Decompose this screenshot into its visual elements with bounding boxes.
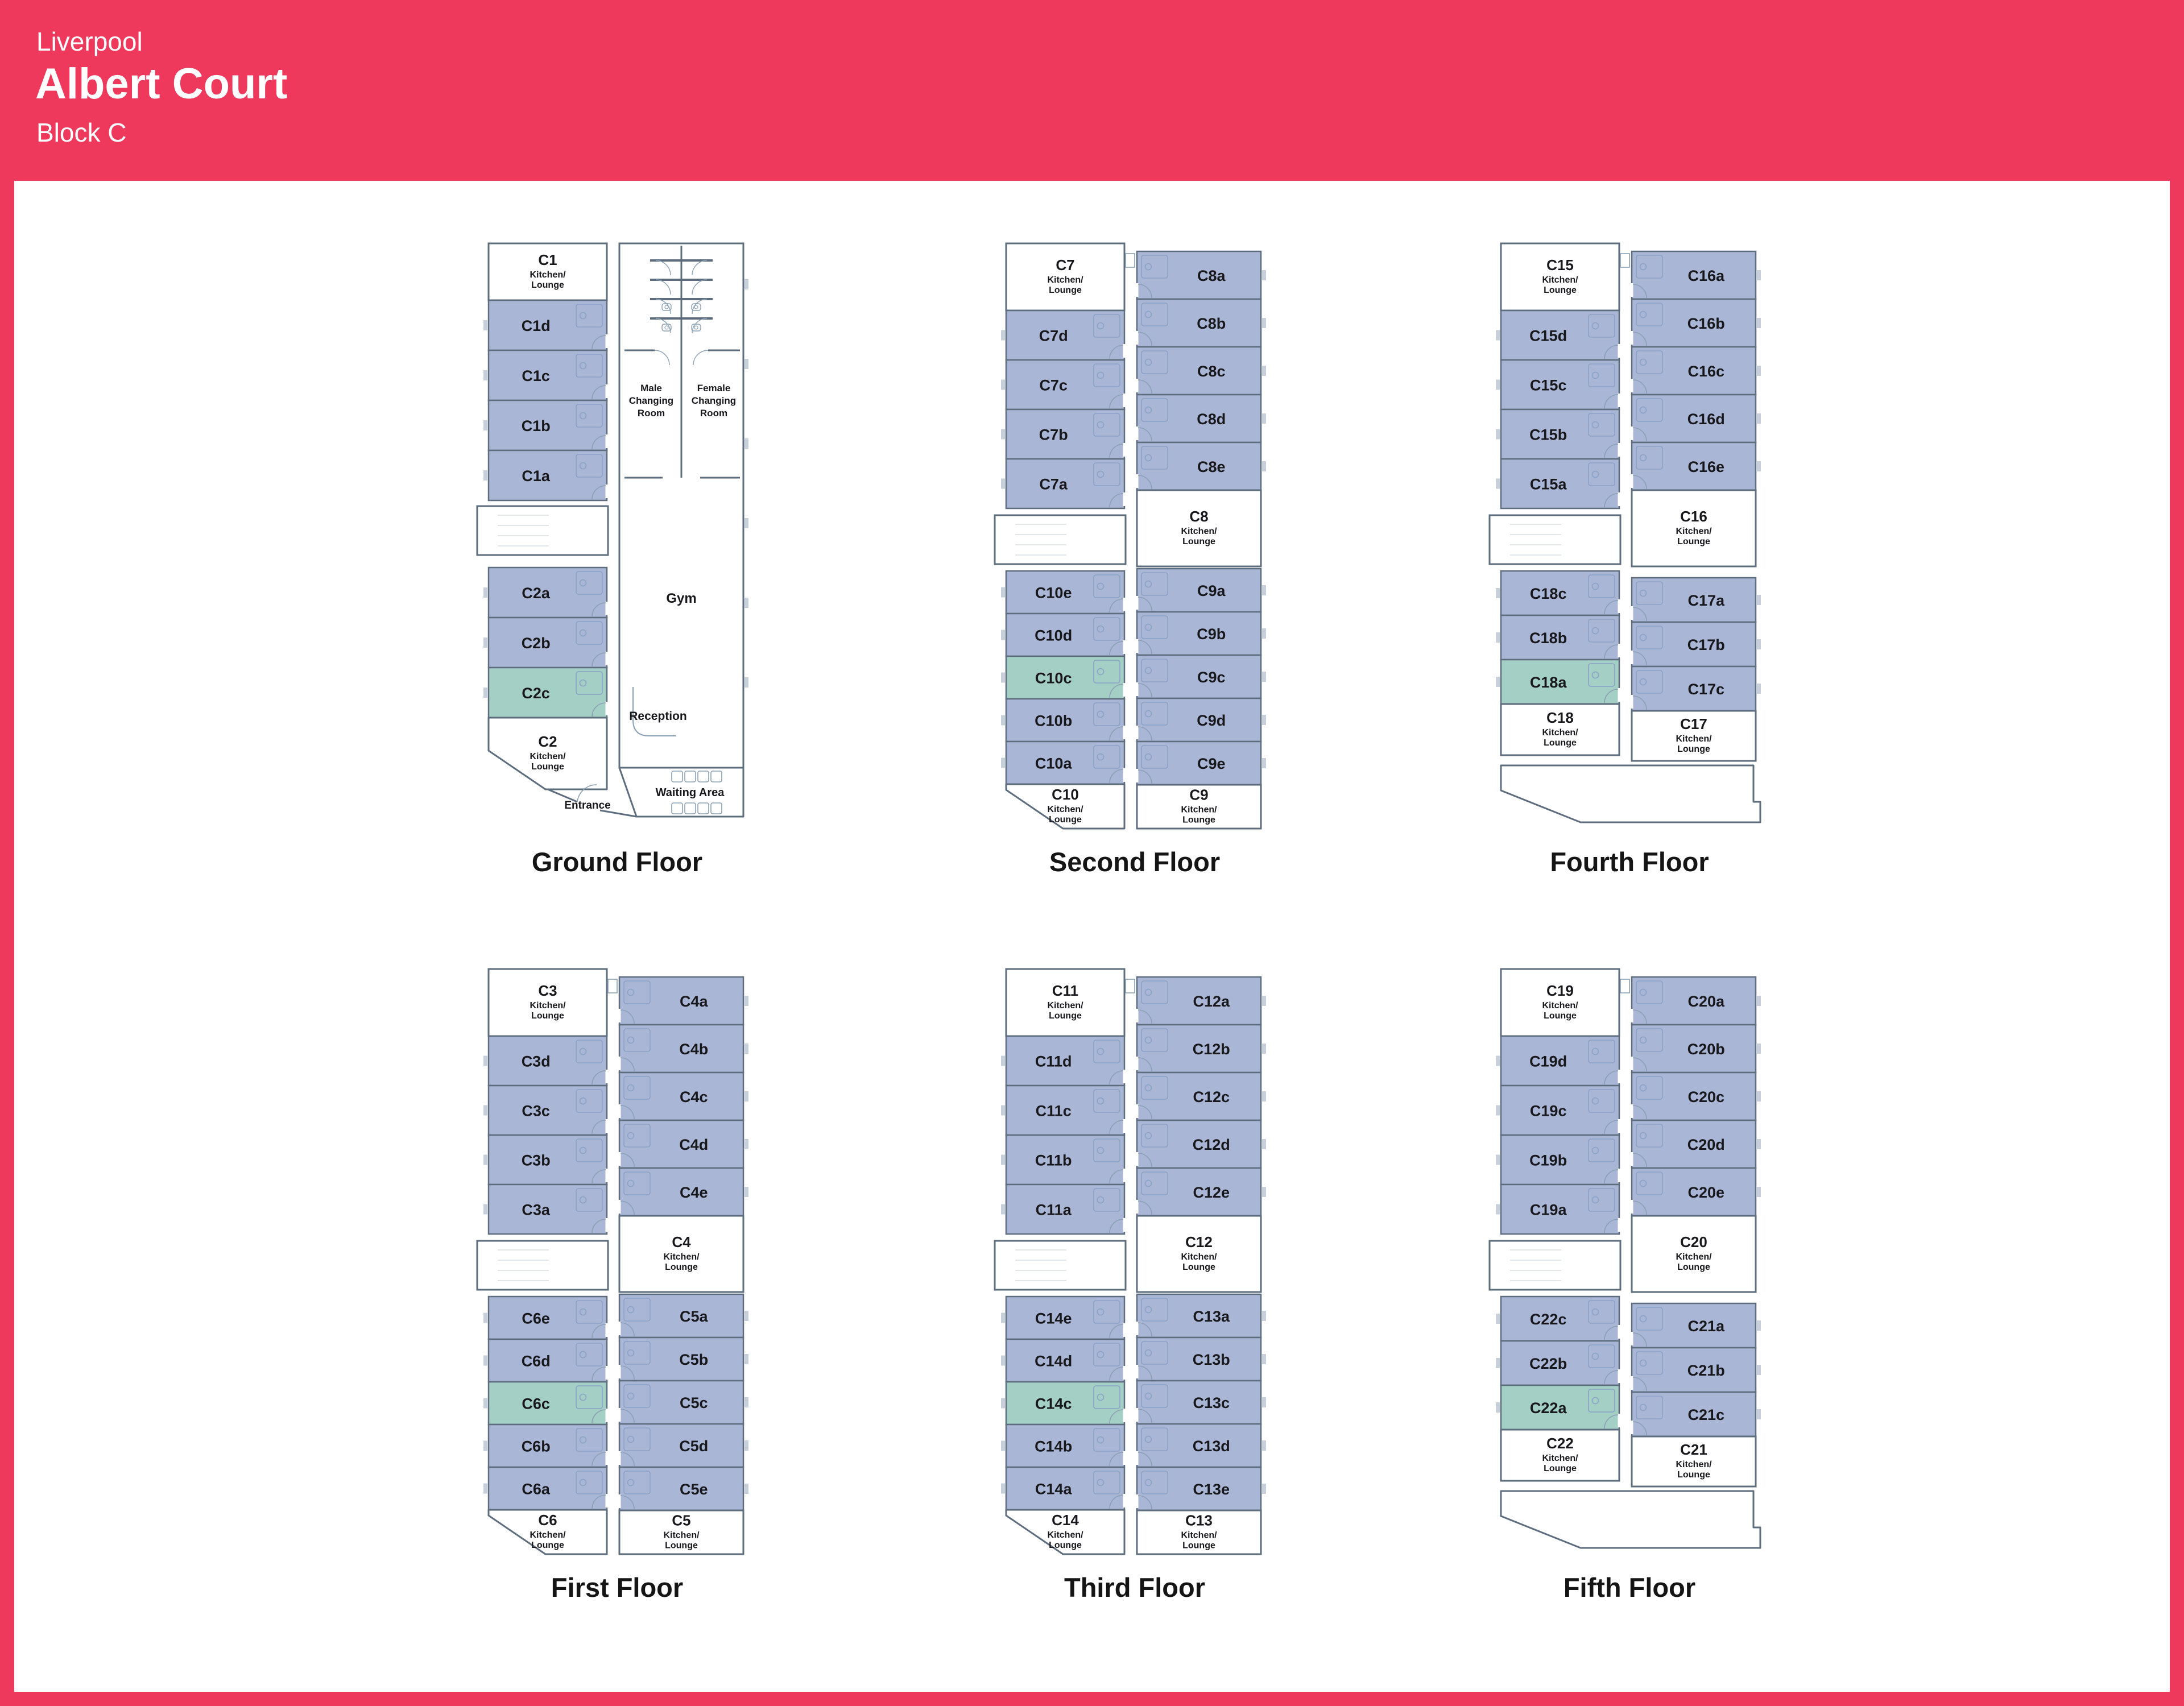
bedroom-label: C19c <box>1530 1103 1567 1120</box>
bedroom-label: C1c <box>522 367 550 384</box>
bedroom-label: C20e <box>1688 1184 1725 1201</box>
bedroom-label: C16e <box>1688 458 1725 475</box>
bedroom-label: C18c <box>1530 585 1567 602</box>
bedroom-C19c: C19c <box>1496 1086 1621 1135</box>
kitchen-sub-label: Kitchen/ <box>1676 1252 1712 1262</box>
bedroom-C1b: C1b <box>483 400 609 450</box>
bedroom-label: C1d <box>522 317 551 334</box>
bedroom-label: C22c <box>1530 1311 1567 1328</box>
bedroom-label: C7d <box>1039 328 1068 345</box>
kitchen-sub-label: Lounge <box>1544 1011 1577 1021</box>
female-changing-room-label: Room <box>700 408 727 419</box>
kitchen-lounge-C18: C18Kitchen/Lounge <box>1501 704 1619 755</box>
kitchen-sub-label: Lounge <box>1677 744 1710 754</box>
bedroom-C9b: C9b <box>1136 612 1267 655</box>
bedroom-label: C4e <box>680 1184 708 1201</box>
kitchen-sub-label: Kitchen/ <box>1047 1001 1083 1011</box>
bedroom-C5a: C5a <box>618 1294 749 1338</box>
bedroom-C8a: C8a <box>1136 251 1267 299</box>
kitchen-sub-label: Kitchen/ <box>530 1001 566 1011</box>
kitchen-label: C9 <box>1189 786 1208 804</box>
male-changing-room-label: Changing <box>629 395 673 406</box>
bedroom-C15c: C15c <box>1496 360 1621 409</box>
bedroom-C22b: C22b <box>1496 1341 1621 1385</box>
bedroom-label: C11c <box>1036 1103 1072 1120</box>
bedroom-C4e: C4e <box>618 1168 749 1216</box>
bedroom-label: C2c <box>522 685 550 702</box>
page: Liverpool Albert Court Block C C1Kitchen… <box>0 0 2184 1706</box>
bedroom-label: C6d <box>522 1353 551 1370</box>
bedroom-label: C8c <box>1197 363 1226 380</box>
bedroom-label: C13b <box>1193 1351 1230 1368</box>
kitchen-sub-label: Kitchen/ <box>1676 734 1712 744</box>
male-changing-room-label: Room <box>638 408 665 419</box>
floor-title: Third Floor <box>991 1572 1278 1603</box>
bedroom-label: C2a <box>522 585 551 602</box>
bedroom-C10a: C10a <box>1001 742 1126 784</box>
kitchen-lounge-C12: C12Kitchen/Lounge <box>1137 1216 1261 1292</box>
bedroom-label: C18a <box>1530 674 1567 691</box>
bedroom-C18b: C18b <box>1496 615 1621 660</box>
bedroom-label: C10a <box>1035 755 1073 772</box>
bedroom-C20d: C20d <box>1631 1120 1761 1168</box>
bedroom-label: C3d <box>522 1053 551 1070</box>
bedroom-label: C17a <box>1688 592 1726 609</box>
bedroom-C13b: C13b <box>1136 1338 1267 1381</box>
kitchen-lounge-C5: C5Kitchen/Lounge <box>619 1510 743 1554</box>
kitchen-sub-label: Lounge <box>665 1262 698 1272</box>
bedroom-C18a: C18a <box>1496 660 1621 704</box>
bedroom-label: C11d <box>1035 1053 1072 1070</box>
bedroom-label: C14b <box>1035 1438 1072 1455</box>
bedroom-label: C20c <box>1688 1088 1725 1105</box>
bedroom-label: C15d <box>1529 328 1567 345</box>
kitchen-sub-label: Lounge <box>1677 1262 1710 1272</box>
bedroom-label: C11b <box>1035 1152 1072 1169</box>
bedroom-C3c: C3c <box>483 1086 609 1135</box>
bedroom-C14e: C14e <box>1001 1297 1126 1339</box>
bedroom-C10c: C10c <box>1001 656 1126 699</box>
kitchen-sub-label: Kitchen/ <box>1676 1460 1712 1469</box>
kitchen-sub-label: Lounge <box>1049 285 1082 295</box>
bedroom-label: C15a <box>1530 476 1567 493</box>
bedroom-C20a: C20a <box>1631 977 1761 1025</box>
bedroom-label: C21c <box>1688 1406 1725 1423</box>
bedroom-label: C22a <box>1530 1399 1567 1417</box>
bedroom-C6b: C6b <box>483 1425 609 1467</box>
kitchen-label: C6 <box>538 1512 557 1529</box>
kitchen-label: C20 <box>1680 1233 1707 1250</box>
kitchen-sub-label: Kitchen/ <box>530 1530 566 1540</box>
bedroom-C11c: C11c <box>1001 1086 1126 1135</box>
bedroom-C5e: C5e <box>618 1467 749 1510</box>
bedroom-C14d: C14d <box>1001 1339 1126 1382</box>
bedroom-label: C17b <box>1687 636 1725 653</box>
bedroom-label: C20d <box>1687 1136 1725 1153</box>
bedroom-C15d: C15d <box>1496 310 1621 360</box>
bedroom-C12d: C12d <box>1136 1120 1267 1168</box>
bedroom-label: C20a <box>1688 993 1726 1010</box>
entrance-label: Entrance <box>564 800 610 811</box>
kitchen-label: C17 <box>1680 715 1707 732</box>
bedroom-label: C19b <box>1529 1152 1567 1169</box>
kitchen-label: C15 <box>1546 256 1574 274</box>
bedroom-C1d: C1d <box>483 300 609 350</box>
bedroom-C12b: C12b <box>1136 1025 1267 1073</box>
bedroom-C20c: C20c <box>1631 1073 1761 1120</box>
female-changing-room-label: Female <box>697 383 731 394</box>
bedroom-label: C10c <box>1035 670 1072 687</box>
bedroom-label: C16c <box>1688 363 1725 380</box>
bedroom-C8b: C8b <box>1136 299 1267 347</box>
bedroom-label: C7c <box>1039 377 1068 394</box>
roof-terrace-outline <box>1501 765 1760 822</box>
kitchen-lounge-C20: C20Kitchen/Lounge <box>1632 1216 1756 1292</box>
kitchen-lounge-C6: C6Kitchen/Lounge <box>489 1510 607 1554</box>
bedroom-label: C8b <box>1197 315 1226 332</box>
bedroom-label: C22b <box>1529 1355 1567 1372</box>
bedroom-label: C14d <box>1035 1353 1072 1370</box>
bedroom-label: C16b <box>1687 315 1725 332</box>
kitchen-sub-label: Lounge <box>531 280 564 290</box>
bedroom-label: C6e <box>522 1310 550 1327</box>
bedroom-C7b: C7b <box>1001 409 1126 459</box>
bedroom-C10e: C10e <box>1001 571 1126 614</box>
floorplan-first-floor: C3Kitchen/LoungeC3dC3cC3bC3aC6eC6dC6cC6b… <box>474 961 760 1603</box>
kitchen-lounge-C21: C21Kitchen/Lounge <box>1632 1436 1756 1486</box>
kitchen-sub-label: Lounge <box>1182 1262 1215 1272</box>
bedroom-label: C10d <box>1035 627 1072 644</box>
kitchen-lounge-C13: C13Kitchen/Lounge <box>1137 1510 1261 1554</box>
bedroom-label: C12b <box>1193 1041 1230 1058</box>
kitchen-sub-label: Kitchen/ <box>1047 805 1083 814</box>
kitchen-label: C21 <box>1680 1441 1707 1458</box>
kitchen-label: C8 <box>1189 508 1208 525</box>
kitchen-sub-label: Kitchen/ <box>1542 1001 1578 1011</box>
bedroom-C3a: C3a <box>483 1185 609 1234</box>
bedroom-label: C12c <box>1193 1088 1230 1105</box>
bedroom-C8c: C8c <box>1136 347 1267 395</box>
floor-title: Second Floor <box>991 846 1278 877</box>
kitchen-sub-label: Lounge <box>1182 815 1215 825</box>
bedroom-C13e: C13e <box>1136 1467 1267 1510</box>
bedroom-C6c: C6c <box>483 1382 609 1425</box>
kitchen-sub-label: Kitchen/ <box>1181 1531 1217 1541</box>
bedroom-label: C13c <box>1193 1394 1230 1411</box>
floor-title: Fifth Floor <box>1486 1572 1773 1603</box>
kitchen-lounge-C4: C4Kitchen/Lounge <box>619 1216 743 1292</box>
kitchen-sub-label: Lounge <box>1182 537 1215 546</box>
kitchen-lounge-C14: C14Kitchen/Lounge <box>1006 1510 1124 1554</box>
kitchen-sub-label: Lounge <box>531 1011 564 1021</box>
bedroom-C9c: C9c <box>1136 655 1267 698</box>
floorplan-sheet: C1Kitchen/LoungeC1dC1cC1bC1aC2aC2bC2cC2K… <box>14 181 2170 1692</box>
bedroom-C11a: C11a <box>1001 1185 1126 1234</box>
kitchen-sub-label: Kitchen/ <box>1542 1454 1578 1463</box>
bedroom-label: C7b <box>1039 426 1068 444</box>
bedroom-C15b: C15b <box>1496 409 1621 459</box>
kitchen-sub-label: Lounge <box>1544 738 1577 748</box>
male-changing-room-label: Male <box>640 383 662 394</box>
bedroom-C7c: C7c <box>1001 360 1126 409</box>
female-changing-room-label: Changing <box>692 395 736 406</box>
bedroom-label: C14c <box>1035 1396 1072 1413</box>
bedroom-C6d: C6d <box>483 1339 609 1382</box>
bedroom-label: C5c <box>680 1394 708 1411</box>
bedroom-label: C6c <box>522 1396 550 1413</box>
kitchen-lounge-C1: C1Kitchen/Lounge <box>489 243 607 300</box>
roof-terrace-outline <box>1501 1491 1760 1548</box>
bedroom-label: C16a <box>1688 267 1726 284</box>
kitchen-label: C16 <box>1680 508 1707 525</box>
header-building-title: Albert Court <box>35 59 287 109</box>
bedroom-C4a: C4a <box>618 977 749 1025</box>
kitchen-sub-label: Kitchen/ <box>1542 275 1578 285</box>
kitchen-lounge-C8: C8Kitchen/Lounge <box>1137 490 1261 566</box>
bedroom-C19a: C19a <box>1496 1185 1621 1234</box>
bedroom-C9d: C9d <box>1136 698 1267 742</box>
floor-title: Ground Floor <box>474 846 760 877</box>
bedroom-C22a: C22a <box>1496 1385 1621 1430</box>
kitchen-sub-label: Lounge <box>665 1541 698 1551</box>
bedroom-label: C15c <box>1530 377 1567 394</box>
kitchen-label: C13 <box>1185 1512 1213 1529</box>
kitchen-lounge-C3: C3Kitchen/Lounge <box>489 969 607 1036</box>
bedroom-C21b: C21b <box>1631 1348 1761 1392</box>
bedroom-C21c: C21c <box>1631 1392 1761 1436</box>
bedroom-C11d: C11d <box>1001 1036 1126 1086</box>
bedroom-label: C14e <box>1035 1310 1072 1327</box>
kitchen-sub-label: Lounge <box>1544 1464 1577 1473</box>
bedroom-C10b: C10b <box>1001 699 1126 742</box>
bedroom-label: C4d <box>679 1136 708 1153</box>
header-city: Liverpool <box>36 26 143 57</box>
floorplan-fifth-floor: C19Kitchen/LoungeC19dC19cC19bC19aC22cC22… <box>1486 961 1773 1603</box>
bedroom-C16b: C16b <box>1631 299 1761 347</box>
kitchen-lounge-C15: C15Kitchen/Lounge <box>1501 243 1619 310</box>
kitchen-sub-label: Kitchen/ <box>1676 527 1712 536</box>
bedroom-C14a: C14a <box>1001 1467 1126 1510</box>
gym-label: Gym <box>666 591 696 606</box>
kitchen-lounge-C19: C19Kitchen/Lounge <box>1501 969 1619 1036</box>
bedroom-C5b: C5b <box>618 1338 749 1381</box>
kitchen-sub-label: Lounge <box>1677 1470 1710 1480</box>
kitchen-sub-label: Kitchen/ <box>530 270 566 280</box>
kitchen-sub-label: Lounge <box>1677 537 1710 546</box>
kitchen-sub-label: Kitchen/ <box>663 1531 700 1541</box>
bedroom-C12e: C12e <box>1136 1168 1267 1216</box>
bedroom-label: C1b <box>522 417 551 434</box>
bedroom-label: C4c <box>680 1088 708 1105</box>
floorplan-fourth-floor: C15Kitchen/LoungeC15dC15cC15bC15aC18cC18… <box>1486 235 1773 877</box>
floor-title: Fourth Floor <box>1486 846 1773 877</box>
bedroom-label: C5d <box>679 1438 708 1455</box>
bedroom-label: C20b <box>1687 1041 1725 1058</box>
bedroom-C12c: C12c <box>1136 1073 1267 1120</box>
bedroom-C2a: C2a <box>483 568 609 618</box>
bedroom-label: C4a <box>680 993 709 1010</box>
kitchen-lounge-C10: C10Kitchen/Lounge <box>1006 784 1124 829</box>
bedroom-label: C9e <box>1197 755 1226 772</box>
floorplan-ground-floor: C1Kitchen/LoungeC1dC1cC1bC1aC2aC2bC2cC2K… <box>474 235 760 877</box>
floorplan-second-floor: C7Kitchen/LoungeC7dC7cC7bC7aC10eC10dC10c… <box>991 235 1278 877</box>
bedroom-C3b: C3b <box>483 1135 609 1185</box>
bedroom-label: C17c <box>1688 681 1725 698</box>
kitchen-label: C3 <box>538 982 557 999</box>
bedroom-label: C12d <box>1193 1136 1230 1153</box>
bedroom-label: C9c <box>1197 669 1226 686</box>
bedroom-label: C8e <box>1197 458 1226 475</box>
bedroom-C4b: C4b <box>618 1025 749 1073</box>
bedroom-C14b: C14b <box>1001 1425 1126 1467</box>
bedroom-C17a: C17a <box>1631 578 1761 622</box>
bedroom-label: C5e <box>680 1481 708 1498</box>
kitchen-lounge-C16: C16Kitchen/Lounge <box>1632 490 1756 566</box>
bedroom-C16c: C16c <box>1631 347 1761 395</box>
waiting-area: Waiting Area <box>619 768 743 817</box>
header-block: Block C <box>36 117 126 148</box>
bedroom-C17c: C17c <box>1631 666 1761 711</box>
bedroom-label: C11a <box>1036 1202 1072 1219</box>
bedroom-label: C21b <box>1687 1362 1725 1379</box>
kitchen-label: C14 <box>1052 1512 1079 1529</box>
kitchen-label: C22 <box>1546 1435 1574 1452</box>
kitchen-sub-label: Kitchen/ <box>1181 805 1217 815</box>
bedroom-label: C8a <box>1197 267 1226 284</box>
bedroom-C8e: C8e <box>1136 442 1267 490</box>
kitchen-sub-label: Lounge <box>531 1541 564 1550</box>
kitchen-label: C11 <box>1052 982 1078 999</box>
kitchen-sub-label: Lounge <box>1049 1011 1082 1021</box>
bedroom-C7a: C7a <box>1001 459 1126 508</box>
bedroom-C2b: C2b <box>483 618 609 668</box>
kitchen-lounge-C17: C17Kitchen/Lounge <box>1632 711 1756 761</box>
kitchen-sub-label: Kitchen/ <box>1542 728 1578 738</box>
kitchen-sub-label: Lounge <box>1544 285 1577 295</box>
bedroom-C13c: C13c <box>1136 1381 1267 1424</box>
kitchen-sub-label: Kitchen/ <box>1047 275 1083 285</box>
bedroom-label: C5b <box>679 1351 708 1368</box>
bedroom-label: C3c <box>522 1103 550 1120</box>
bedroom-label: C21a <box>1688 1318 1726 1335</box>
kitchen-label: C5 <box>672 1512 690 1529</box>
bedroom-C9a: C9a <box>1136 569 1267 612</box>
bedroom-label: C6a <box>522 1481 551 1498</box>
bedroom-label: C10b <box>1035 713 1072 730</box>
kitchen-sub-label: Kitchen/ <box>1181 527 1217 536</box>
kitchen-label: C12 <box>1185 1233 1213 1250</box>
kitchen-label: C2 <box>538 733 557 750</box>
bedroom-C14c: C14c <box>1001 1382 1126 1425</box>
bedroom-C7d: C7d <box>1001 310 1126 360</box>
waiting-area-label: Waiting Area <box>656 786 725 799</box>
bedroom-C8d: C8d <box>1136 395 1267 442</box>
kitchen-lounge-C9: C9Kitchen/Lounge <box>1137 785 1261 829</box>
bedroom-C20e: C20e <box>1631 1168 1761 1216</box>
bedroom-label: C7a <box>1039 476 1068 493</box>
bedroom-label: C8d <box>1197 411 1226 428</box>
kitchen-lounge-C22: C22Kitchen/Lounge <box>1501 1430 1619 1481</box>
kitchen-sub-label: Lounge <box>1182 1541 1215 1551</box>
bedroom-C5c: C5c <box>618 1381 749 1424</box>
bedroom-C1a: C1a <box>483 450 609 500</box>
bedroom-C16e: C16e <box>1631 442 1761 490</box>
kitchen-label: C4 <box>672 1233 691 1250</box>
floor-title: First Floor <box>474 1572 760 1603</box>
bedroom-C2c: C2c <box>483 668 609 718</box>
bedroom-C3d: C3d <box>483 1036 609 1086</box>
bedroom-C22c: C22c <box>1496 1297 1621 1341</box>
bedroom-C1c: C1c <box>483 350 609 400</box>
reception-label: Reception <box>629 710 687 723</box>
bedroom-C19b: C19b <box>1496 1135 1621 1185</box>
kitchen-label: C1 <box>538 251 557 268</box>
bedroom-label: C19a <box>1530 1202 1567 1219</box>
kitchen-sub-label: Kitchen/ <box>1181 1252 1217 1262</box>
bedroom-C4c: C4c <box>618 1073 749 1120</box>
bedroom-label: C3b <box>522 1152 551 1169</box>
bedroom-C20b: C20b <box>1631 1025 1761 1073</box>
kitchen-sub-label: Kitchen/ <box>1047 1530 1083 1540</box>
kitchen-label: C10 <box>1052 786 1079 803</box>
bedroom-label: C9d <box>1197 712 1226 729</box>
bedroom-label: C9a <box>1197 582 1226 599</box>
bedroom-label: C16d <box>1687 411 1725 428</box>
kitchen-lounge-C7: C7Kitchen/Lounge <box>1006 243 1124 310</box>
bedroom-C12a: C12a <box>1136 977 1267 1025</box>
bedroom-C16d: C16d <box>1631 395 1761 442</box>
kitchen-label: C18 <box>1546 709 1574 726</box>
bedroom-C11b: C11b <box>1001 1135 1126 1185</box>
bedroom-C10d: C10d <box>1001 614 1126 656</box>
bedroom-label: C13d <box>1193 1438 1230 1455</box>
bedroom-label: C13a <box>1193 1308 1231 1325</box>
bedroom-label: C10e <box>1035 585 1072 602</box>
bedroom-label: C13e <box>1193 1481 1230 1498</box>
bedroom-label: C19d <box>1529 1053 1567 1070</box>
bedroom-label: C6b <box>522 1438 551 1455</box>
bedroom-label: C3a <box>522 1202 551 1219</box>
bedroom-C4d: C4d <box>618 1120 749 1168</box>
bedroom-label: C12a <box>1193 993 1231 1010</box>
kitchen-sub-label: Lounge <box>1049 815 1082 825</box>
bedroom-C17b: C17b <box>1631 622 1761 666</box>
bedroom-label: C14a <box>1035 1481 1073 1498</box>
kitchen-sub-label: Lounge <box>531 762 564 772</box>
kitchen-sub-label: Kitchen/ <box>663 1252 700 1262</box>
bedroom-label: C1a <box>522 467 551 485</box>
kitchen-sub-label: Kitchen/ <box>530 752 566 761</box>
bedroom-C9e: C9e <box>1136 742 1267 785</box>
bedroom-C16a: C16a <box>1631 251 1761 299</box>
kitchen-lounge-C11: C11Kitchen/Lounge <box>1006 969 1124 1036</box>
bedroom-C19d: C19d <box>1496 1036 1621 1086</box>
bedroom-C6e: C6e <box>483 1297 609 1339</box>
bedroom-label: C4b <box>679 1041 708 1058</box>
bedroom-label: C15b <box>1529 426 1567 444</box>
kitchen-lounge-C2: C2Kitchen/Lounge <box>489 718 607 789</box>
kitchen-label: C7 <box>1056 256 1074 274</box>
bedroom-C18c: C18c <box>1496 571 1621 615</box>
bedroom-C6a: C6a <box>483 1467 609 1510</box>
kitchen-label: C19 <box>1546 982 1574 999</box>
bedroom-C13a: C13a <box>1136 1294 1267 1338</box>
bedroom-label: C9b <box>1197 626 1226 643</box>
bedroom-C21a: C21a <box>1631 1303 1761 1348</box>
bedroom-C5d: C5d <box>618 1424 749 1467</box>
kitchen-sub-label: Lounge <box>1049 1541 1082 1550</box>
floorplan-third-floor: C11Kitchen/LoungeC11dC11cC11bC11aC14eC14… <box>991 961 1278 1603</box>
